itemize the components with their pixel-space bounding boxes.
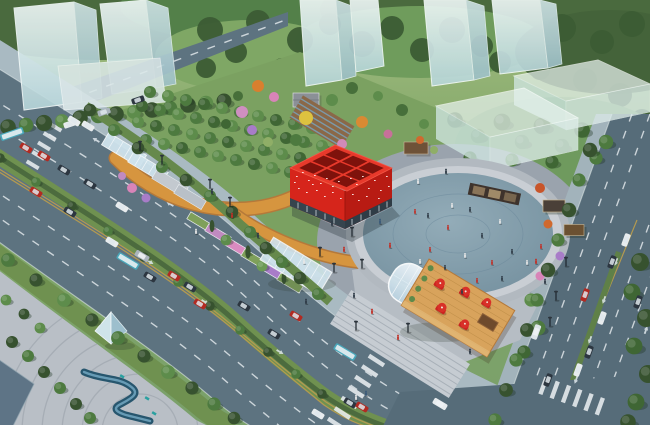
rendering-canvas [0,0,650,425]
garden-pavilion [404,142,431,157]
architectural-rendering [0,0,650,425]
glass-towers-right [492,0,562,74]
podium-building [58,58,166,110]
